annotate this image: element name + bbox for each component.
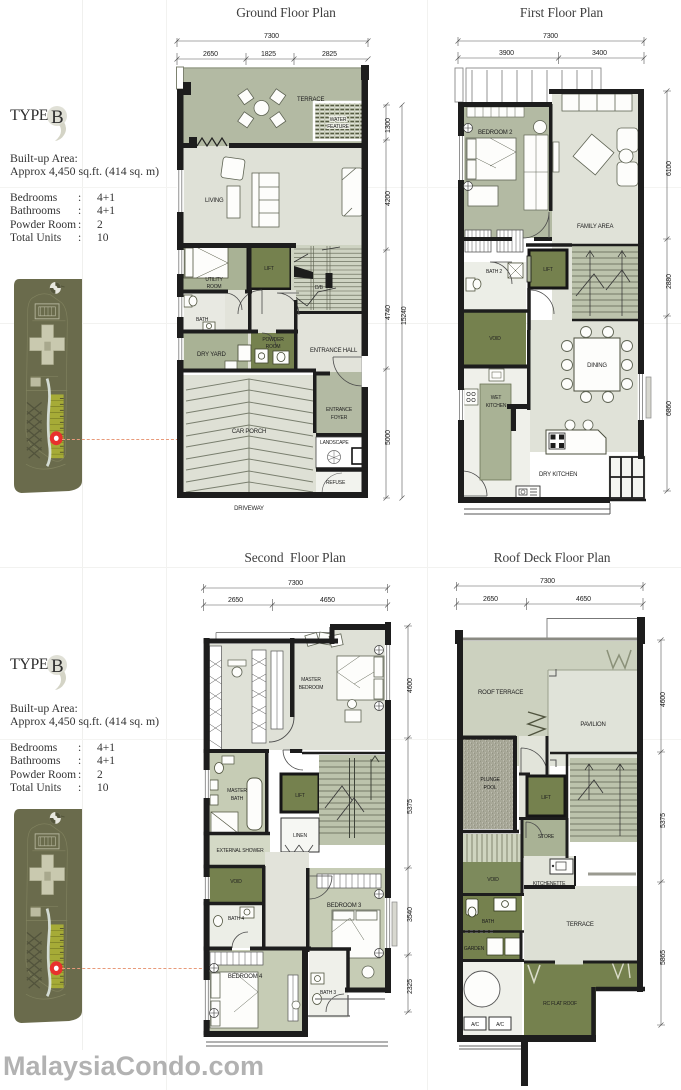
svg-text:DINING: DINING xyxy=(587,363,607,369)
svg-text:6860: 6860 xyxy=(666,401,673,416)
svg-text:3540: 3540 xyxy=(407,907,414,922)
svg-text:1300: 1300 xyxy=(385,118,392,133)
svg-text:2325: 2325 xyxy=(407,979,414,994)
svg-text:2650: 2650 xyxy=(483,596,498,603)
svg-text:4650: 4650 xyxy=(576,596,591,603)
svg-text:ENTRANCE HALL: ENTRANCE HALL xyxy=(310,348,358,354)
svg-text:LINEN: LINEN xyxy=(293,833,307,839)
svg-text:KITCHEN: KITCHEN xyxy=(486,403,507,409)
svg-text:ROOF TERRACE: ROOF TERRACE xyxy=(478,690,523,696)
svg-text:3900: 3900 xyxy=(499,50,514,57)
svg-text:15240: 15240 xyxy=(401,306,408,325)
svg-text:BATH: BATH xyxy=(196,317,209,323)
svg-text:EXTERNAL SHOWER: EXTERNAL SHOWER xyxy=(216,848,264,854)
svg-text:4600: 4600 xyxy=(407,678,414,693)
svg-text:WET: WET xyxy=(491,395,502,401)
svg-text:4650: 4650 xyxy=(320,597,335,604)
svg-text:RC FLAT ROOF: RC FLAT ROOF xyxy=(543,1001,577,1007)
svg-text:PAVILION: PAVILION xyxy=(580,722,605,728)
svg-text:4740: 4740 xyxy=(385,305,392,320)
svg-text:2650: 2650 xyxy=(203,51,218,58)
svg-text:UTILITY: UTILITY xyxy=(205,277,223,283)
svg-text:CAR PORCH: CAR PORCH xyxy=(232,429,266,435)
svg-text:A/C: A/C xyxy=(496,1022,504,1028)
svg-text:B: B xyxy=(51,656,64,677)
svg-text:VOID: VOID xyxy=(487,877,499,883)
svg-text:1825: 1825 xyxy=(261,51,276,58)
svg-text:BEDROOM: BEDROOM xyxy=(299,685,323,691)
svg-text:6100: 6100 xyxy=(666,161,673,176)
svg-text:WATER: WATER xyxy=(330,117,347,123)
svg-text:B: B xyxy=(51,107,64,128)
svg-text:2650: 2650 xyxy=(228,597,243,604)
svg-text:2825: 2825 xyxy=(322,51,337,58)
svg-text:FOYER: FOYER xyxy=(331,415,348,421)
svg-text:ROOM: ROOM xyxy=(207,284,222,290)
svg-text:TERRACE: TERRACE xyxy=(566,922,593,928)
svg-text:ENTRANCE: ENTRANCE xyxy=(326,407,353,413)
svg-text:7300: 7300 xyxy=(288,580,303,587)
svg-text:REFUSE: REFUSE xyxy=(326,480,346,486)
svg-text:LIVING: LIVING xyxy=(205,198,224,204)
svg-text:FEATURE: FEATURE xyxy=(327,124,349,130)
svg-text:5375: 5375 xyxy=(660,813,667,828)
svg-text:ROOM: ROOM xyxy=(266,344,281,350)
svg-text:BATH: BATH xyxy=(231,796,244,802)
svg-text:7300: 7300 xyxy=(540,578,555,585)
svg-text:POWDER: POWDER xyxy=(262,337,284,343)
svg-text:GARDEN: GARDEN xyxy=(464,946,485,952)
svg-text:LIFT: LIFT xyxy=(543,267,553,273)
svg-text:LIFT: LIFT xyxy=(264,266,274,272)
svg-text:LIFT: LIFT xyxy=(541,795,551,801)
svg-text:KITCHENETTE: KITCHENETTE xyxy=(533,881,566,887)
svg-text:LIFT: LIFT xyxy=(295,793,305,799)
svg-text:TERRACE: TERRACE xyxy=(297,97,324,103)
svg-text:BATH: BATH xyxy=(482,919,495,925)
svg-text:DRY KITCHEN: DRY KITCHEN xyxy=(539,472,577,478)
svg-text:5000: 5000 xyxy=(385,430,392,445)
svg-text:BEDROOM 3: BEDROOM 3 xyxy=(327,903,362,909)
svg-text:VOID: VOID xyxy=(230,879,242,885)
svg-text:BATH 3: BATH 3 xyxy=(320,990,336,996)
svg-text:BATH 4: BATH 4 xyxy=(228,916,244,922)
svg-text:4200: 4200 xyxy=(385,191,392,206)
svg-text:DRIVEWAY: DRIVEWAY xyxy=(234,506,264,512)
svg-text:D/B: D/B xyxy=(315,285,324,291)
svg-text:MASTER: MASTER xyxy=(227,788,247,794)
svg-text:7300: 7300 xyxy=(264,33,279,40)
svg-text:A/C: A/C xyxy=(471,1022,479,1028)
svg-text:VOID: VOID xyxy=(489,336,501,342)
svg-text:BATH 2: BATH 2 xyxy=(486,269,502,275)
svg-text:BEDROOM 4: BEDROOM 4 xyxy=(228,974,263,980)
svg-text:DRY YARD: DRY YARD xyxy=(197,352,227,358)
svg-text:PLUNGE: PLUNGE xyxy=(480,777,500,783)
svg-text:LANDSCAPE: LANDSCAPE xyxy=(320,440,349,446)
svg-text:4600: 4600 xyxy=(660,692,667,707)
svg-text:MASTER: MASTER xyxy=(301,677,321,683)
svg-text:5865: 5865 xyxy=(660,950,667,965)
svg-text:BEDROOM 2: BEDROOM 2 xyxy=(478,130,513,136)
svg-text:POOL: POOL xyxy=(483,785,497,791)
svg-text:7300: 7300 xyxy=(543,33,558,40)
svg-text:STORE: STORE xyxy=(538,834,555,840)
svg-text:5375: 5375 xyxy=(407,799,414,814)
svg-text:FAMILY AREA: FAMILY AREA xyxy=(577,224,613,230)
svg-text:3400: 3400 xyxy=(592,50,607,57)
svg-text:2880: 2880 xyxy=(666,274,673,289)
